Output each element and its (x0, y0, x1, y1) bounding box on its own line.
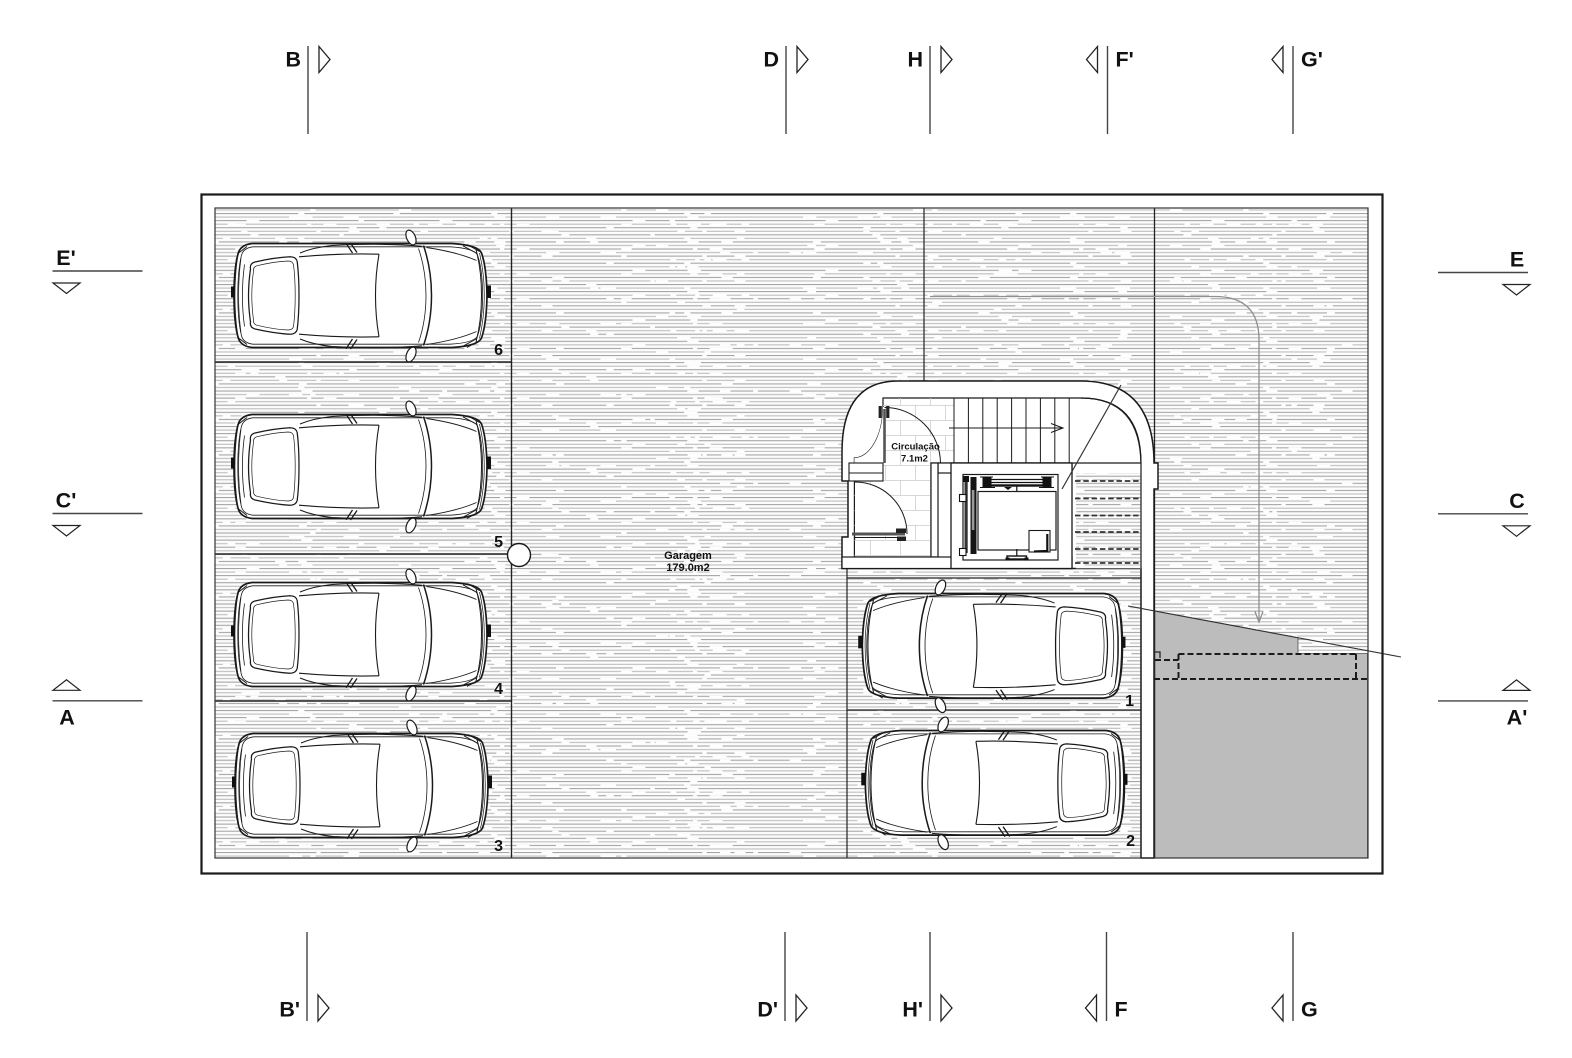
svg-text:5: 5 (494, 534, 503, 551)
svg-text:C: C (1509, 489, 1525, 513)
svg-text:H: H (907, 48, 923, 72)
svg-text:B: B (285, 48, 301, 72)
svg-text:3: 3 (494, 838, 503, 855)
svg-text:A: A (59, 705, 75, 729)
svg-text:D: D (763, 48, 779, 72)
svg-text:B': B' (279, 998, 300, 1022)
svg-text:179.0m2: 179.0m2 (666, 562, 709, 574)
svg-text:E: E (1510, 248, 1524, 272)
svg-text:F': F' (1116, 48, 1134, 72)
svg-text:7.1m2: 7.1m2 (901, 454, 928, 465)
svg-text:D': D' (757, 998, 778, 1022)
svg-text:A': A' (1507, 705, 1528, 729)
svg-text:G: G (1301, 998, 1318, 1022)
svg-text:C': C' (56, 489, 77, 513)
svg-text:H': H' (902, 998, 923, 1022)
svg-text:2: 2 (1126, 833, 1135, 850)
svg-text:6: 6 (494, 342, 503, 359)
svg-text:E': E' (56, 246, 75, 270)
svg-text:4: 4 (494, 681, 503, 698)
svg-text:Garagem: Garagem (664, 550, 712, 562)
svg-text:1: 1 (1125, 693, 1134, 710)
svg-text:Circulação: Circulação (891, 442, 940, 453)
svg-text:G': G' (1301, 48, 1323, 72)
svg-text:F: F (1115, 998, 1128, 1022)
